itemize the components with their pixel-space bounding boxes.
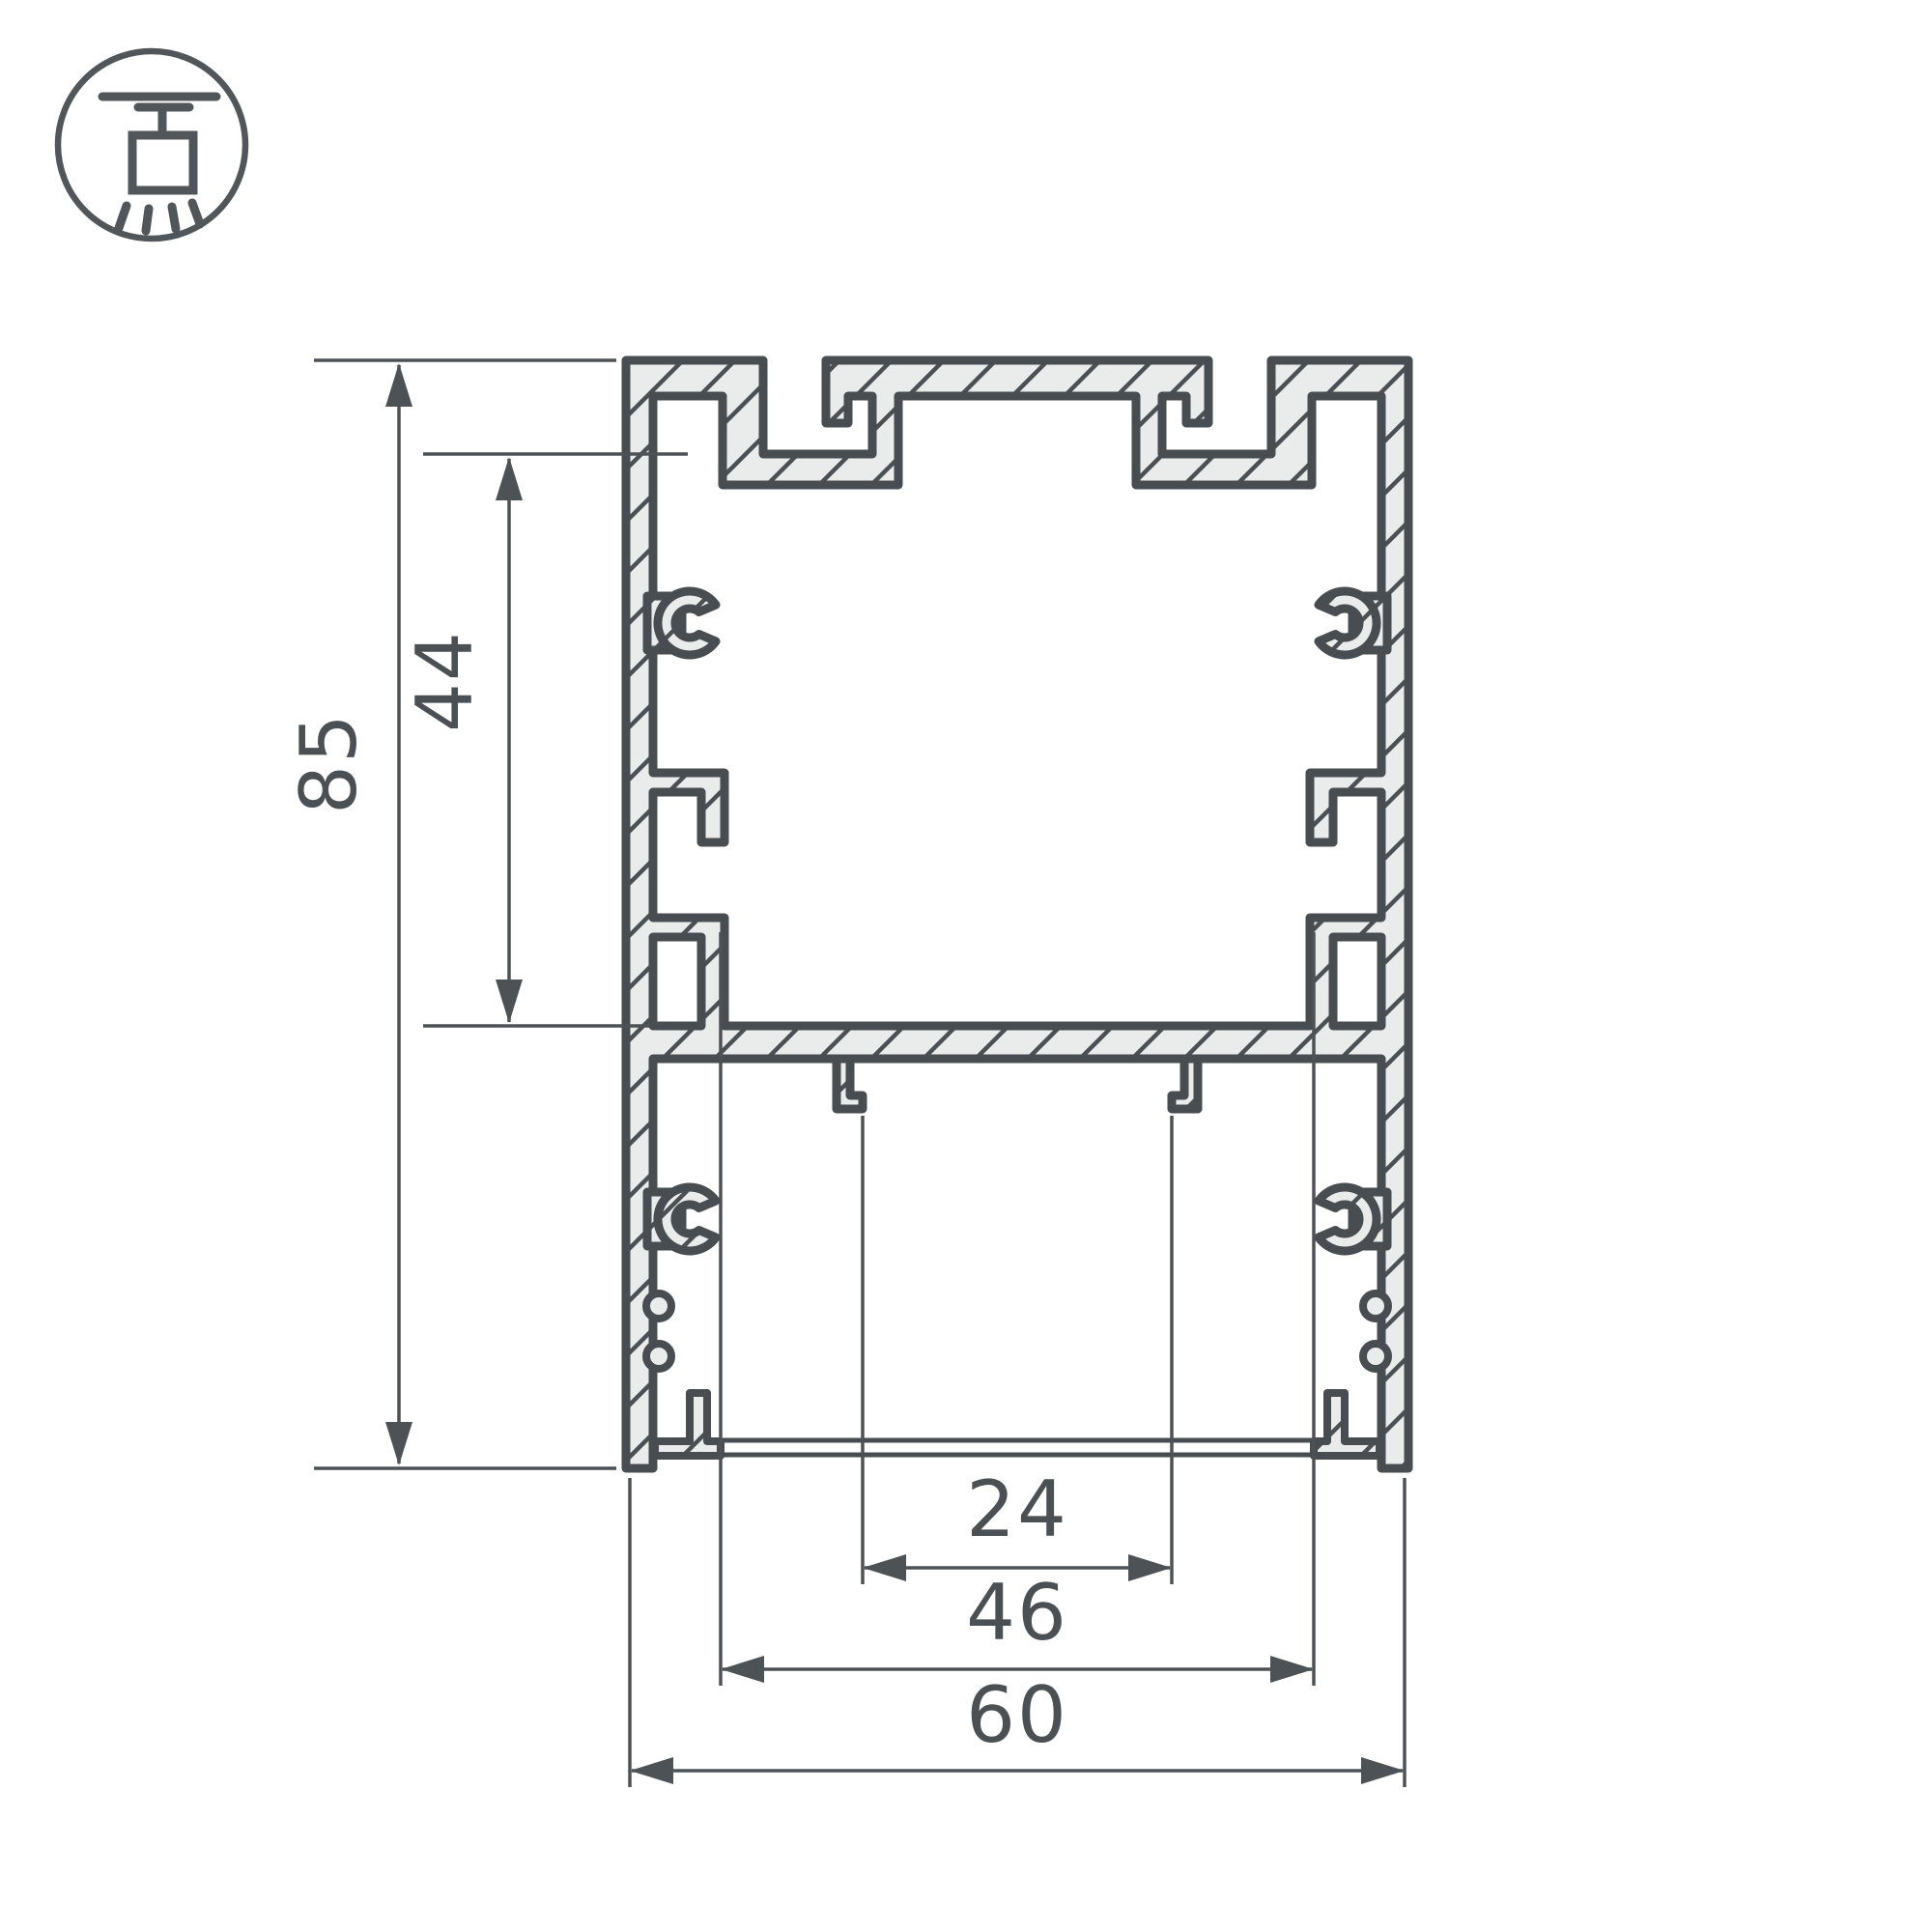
profile-cross-section (626, 360, 1408, 1468)
dimension-annotations (314, 360, 1405, 1787)
screw-boss (1319, 1187, 1377, 1251)
clip-rib (646, 1344, 671, 1369)
overall-height-label: 85 (284, 712, 374, 814)
profile-body (626, 360, 1408, 1468)
arrowhead-left (863, 1554, 906, 1581)
icon-light-ray (146, 209, 149, 231)
led-strip-tab (837, 1059, 863, 1109)
led-strip-tab (1172, 1059, 1198, 1109)
pendant-ceiling-light-icon (58, 51, 245, 239)
arrowhead-right (1361, 1757, 1405, 1784)
dimension-overall-height (385, 363, 412, 1465)
diffuser-shelf (1314, 1393, 1379, 1456)
screw-boss (1319, 591, 1377, 655)
dimension-inner-height (496, 457, 523, 1023)
arrowhead-right (1270, 1656, 1314, 1683)
arrowhead-right (1128, 1554, 1172, 1581)
icon-lamp-body (132, 135, 193, 190)
arrowhead-up (385, 363, 412, 407)
arrowhead-left (630, 1757, 673, 1784)
arrowhead-left (721, 1656, 764, 1683)
clip-rib (1363, 1344, 1388, 1369)
led-slot-width-label: 24 (966, 1464, 1068, 1554)
inner-height-label: 44 (400, 630, 490, 732)
clip-rib (646, 1293, 671, 1319)
diffuser-shelf (655, 1393, 721, 1456)
clip-rib (1363, 1293, 1388, 1319)
profile-technical-drawing: 85 44 24 46 60 (0, 0, 1932, 1932)
overall-width-label: 60 (966, 1670, 1068, 1760)
screw-boss (658, 1187, 716, 1251)
diffuser-plate (721, 1440, 1314, 1455)
icon-light-ray (192, 203, 200, 224)
icon-light-ray (172, 207, 176, 229)
arrowhead-up (496, 457, 523, 500)
icon-light-ray (119, 206, 127, 228)
screw-boss (658, 591, 716, 655)
dimension-overall-width (630, 1757, 1405, 1784)
drawing-canvas: 85 44 24 46 60 (0, 0, 1932, 1932)
inner-width-label: 46 (966, 1568, 1068, 1658)
arrowhead-down (385, 1422, 412, 1465)
arrowhead-down (496, 980, 523, 1023)
